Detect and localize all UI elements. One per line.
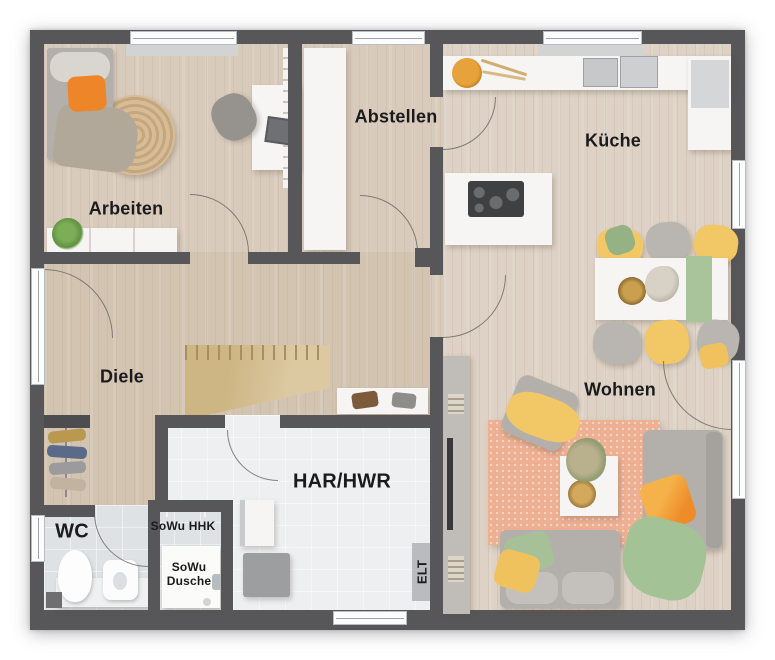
wall-sowu-east <box>221 500 233 610</box>
arbeiten-window-sill <box>126 44 238 56</box>
abstellen-label: Abstellen <box>355 107 438 128</box>
orange-pillow <box>67 75 107 113</box>
har-gray-box <box>243 553 290 597</box>
kitchen-counter-panel <box>691 60 729 108</box>
wall-corridor-stub <box>415 248 443 267</box>
entry-door <box>31 268 45 385</box>
arbeiten-label: Arbeiten <box>89 199 164 220</box>
wc-mat <box>46 592 62 608</box>
wc-label: WC <box>55 521 89 544</box>
toilet <box>58 550 92 602</box>
kueche-right-window <box>732 160 746 229</box>
abstellen-window <box>352 31 425 45</box>
sowu-dusche-label: SoWu Dusche <box>166 561 212 589</box>
wall-har-west <box>155 428 168 505</box>
har-bottom-window <box>333 611 407 625</box>
wall-arbeiten-south-left <box>44 252 190 264</box>
diele-label: Diele <box>100 367 144 388</box>
wall-wc-north <box>44 505 95 517</box>
sink-left <box>583 58 618 87</box>
sofa-cushion-right <box>562 572 614 604</box>
kueche-window-sill <box>539 44 643 56</box>
washing-machine <box>240 500 274 546</box>
wall-sowu-west <box>148 500 160 610</box>
wall-kueche-west-top <box>430 44 443 97</box>
tv <box>447 438 453 530</box>
coffee-table-plant <box>566 438 606 482</box>
wall-wohnen-west <box>430 337 443 610</box>
wall-har-north-right <box>280 415 443 428</box>
abstellen-closet <box>304 48 346 250</box>
chaise-back-cushion <box>706 432 722 548</box>
sowu-hhk-label: SoWu HHK <box>151 520 216 534</box>
wohnen-terrace-window <box>732 360 746 499</box>
plant <box>52 218 84 250</box>
floor-plan: Arbeiten Abstellen Küche Diele Wohnen HA… <box>0 0 775 660</box>
sink-right <box>620 56 658 88</box>
wall-arbeiten-abstellen <box>288 44 302 264</box>
har-hwr-label: HAR/HWR <box>293 471 391 494</box>
arbeiten-window <box>130 31 237 45</box>
kueche-label: Küche <box>585 131 641 152</box>
wc-sink-basin <box>113 572 127 590</box>
sideboard-books-bottom <box>448 556 464 582</box>
daybed-blanket <box>51 101 140 175</box>
coat-3 <box>49 461 87 476</box>
fruit-bowl <box>452 58 482 88</box>
shower-drain <box>203 598 211 606</box>
table-runner <box>686 256 712 322</box>
wall-arbeiten-south-right <box>248 252 360 264</box>
dining-chair-gray-2 <box>592 320 643 365</box>
coffee-table-bowl <box>568 480 596 508</box>
wc-window <box>31 515 45 562</box>
cooktop <box>468 181 524 217</box>
washing-machine-edge <box>240 500 245 546</box>
wohnen-label: Wohnen <box>584 380 656 401</box>
elt-label: ELT <box>415 560 430 584</box>
staircase-treads <box>185 345 323 360</box>
kueche-top-window <box>543 31 642 45</box>
table-bowl <box>618 277 646 305</box>
sideboard-books-top <box>448 394 464 414</box>
coat-rack-shelf <box>44 415 90 428</box>
wall-har-north-left <box>155 415 225 428</box>
bag-gray <box>391 392 416 409</box>
